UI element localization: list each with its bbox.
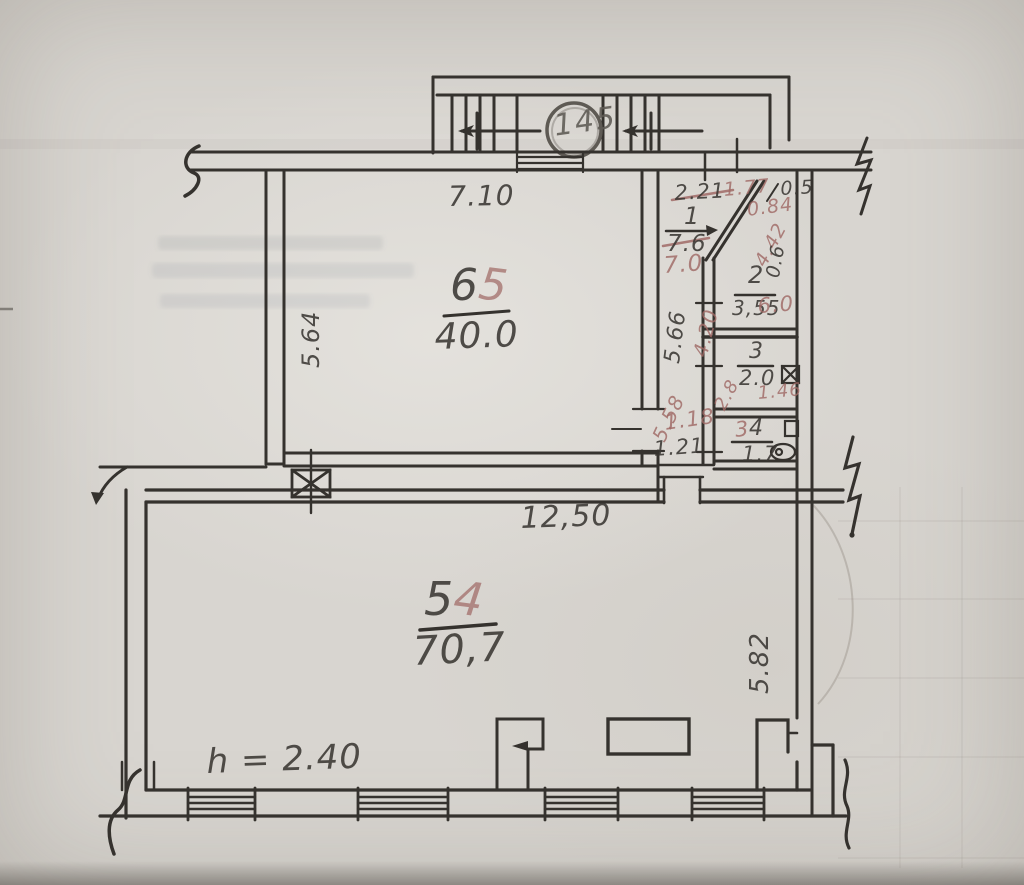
dim-left-height: 5.64 <box>299 311 323 368</box>
room-54-number: 54 <box>424 576 485 622</box>
room-54-number-main: 5 <box>424 572 454 626</box>
dim-1-21: 1.21 <box>653 435 705 459</box>
room-65-number-main: 6 <box>450 260 479 311</box>
room-1-number: 1 <box>684 204 700 228</box>
room-65-area: 40.0 <box>434 317 519 356</box>
room-54-area: 70,7 <box>412 627 507 672</box>
dim-corridor: 5.66 <box>662 309 690 364</box>
dim-4-20: 4.20 <box>690 307 721 359</box>
floor-plan-sketch: 145 7.10 5.64 65 40.0 1 7.6 7.0 2.21 1.7… <box>0 0 1024 885</box>
room-1-area-new: 7.0 <box>663 252 704 278</box>
dim-top-width: 7.10 <box>448 182 515 211</box>
dim-hall-old: 2.21 <box>674 180 726 204</box>
labels-layer: 145 7.10 5.64 65 40.0 1 7.6 7.0 2.21 1.7… <box>0 0 1024 885</box>
room-4-number: 4 <box>749 418 764 440</box>
dim-2-8: 2.8 <box>712 377 743 413</box>
dim-right-height: 5.82 <box>747 632 773 694</box>
room-2-area-new: 6.0 <box>757 293 795 316</box>
dim-1-46: 1.46 <box>757 381 802 403</box>
room-4-area: 1.7 <box>742 444 778 465</box>
dim-0-84: 0.84 <box>746 195 794 220</box>
dim-1-18: 1.18 <box>663 406 716 434</box>
room-3-number: 3 <box>749 341 764 363</box>
room-54-number-red: 4 <box>452 574 488 623</box>
room-65-number: 65 <box>450 264 508 308</box>
stair-count-label: 145 <box>552 103 619 142</box>
dim-0-6: 0.6 <box>764 243 788 279</box>
room-2-number: 2 <box>748 263 764 287</box>
room-65-number-red: 5 <box>476 262 510 309</box>
ceiling-height-note: h = 2.40 <box>206 740 362 779</box>
dim-bottom-width: 12,50 <box>520 501 612 534</box>
